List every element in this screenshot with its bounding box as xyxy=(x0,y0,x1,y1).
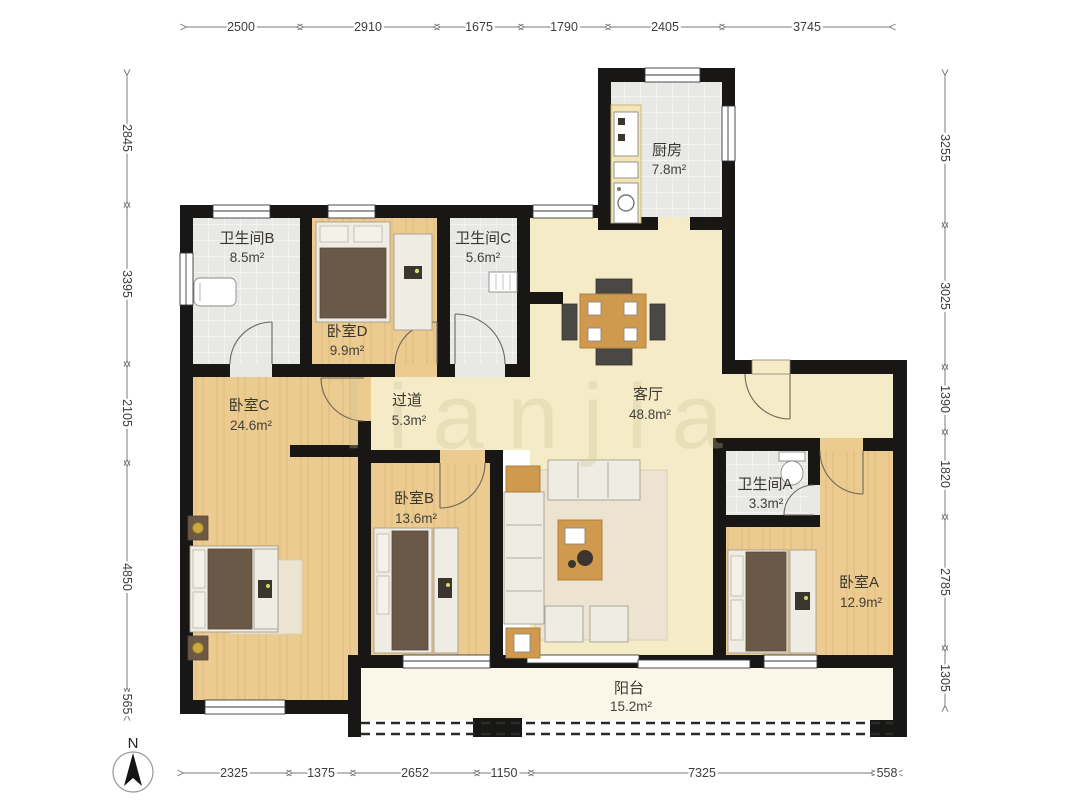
room-name-balcony: 阳台 xyxy=(614,680,644,697)
svg-text:1375: 1375 xyxy=(307,766,335,780)
svg-text:2105: 2105 xyxy=(120,399,134,427)
room-name-bedroom-c: 卧室C xyxy=(229,397,270,414)
svg-text:1150: 1150 xyxy=(491,766,518,780)
room-area-bathroom-c: 5.6m² xyxy=(466,250,501,265)
room-area-living-room: 48.8m² xyxy=(629,407,672,422)
sofa-group xyxy=(504,460,667,658)
room-area-kitchen: 7.8m² xyxy=(652,162,687,177)
svg-text:3255: 3255 xyxy=(938,134,952,162)
svg-text:1820: 1820 xyxy=(938,460,952,488)
room-name-bedroom-b: 卧室B xyxy=(394,490,434,507)
room-name-bedroom-a: 卧室A xyxy=(839,574,879,591)
window-bedroom-b xyxy=(403,655,490,668)
bed-bedroom-a xyxy=(728,550,816,653)
svg-text:3745: 3745 xyxy=(793,20,821,34)
window-kitchen-right xyxy=(722,106,735,161)
dim-top: 2500 2910 1675 1790 2405 3745 xyxy=(186,20,890,34)
svg-text:565: 565 xyxy=(120,694,134,715)
floor-kitchen-passage xyxy=(658,217,690,231)
svg-text:1790: 1790 xyxy=(550,20,578,34)
room-area-hallway: 5.3m² xyxy=(392,413,427,428)
kitchen-counter xyxy=(611,105,641,223)
floor-bedroom-c xyxy=(193,377,358,700)
window-bedroom-c xyxy=(205,700,285,714)
room-name-bathroom-b: 卫生间B xyxy=(219,230,274,247)
svg-text:2652: 2652 xyxy=(401,766,429,780)
bed-bedroom-d xyxy=(316,222,432,330)
svg-text:1390: 1390 xyxy=(938,385,952,413)
compass: N xyxy=(113,735,153,792)
svg-text:2500: 2500 xyxy=(227,20,255,34)
svg-text:7325: 7325 xyxy=(688,766,716,780)
room-name-bathroom-a: 卫生间A xyxy=(737,476,792,493)
room-area-bathroom-a: 3.3m² xyxy=(749,496,784,511)
compass-north-label: N xyxy=(128,735,139,752)
coffee-table xyxy=(558,520,602,580)
room-name-bedroom-d: 卧室D xyxy=(327,323,368,340)
svg-text:4850: 4850 xyxy=(120,563,134,591)
nightstand xyxy=(188,516,208,540)
svg-text:2325: 2325 xyxy=(220,766,248,780)
floor-plan: lianjia 卫生间B 8.5m² 卧室D 9.9m² 卫生间C 5.6m² … xyxy=(0,0,1080,810)
svg-text:3025: 3025 xyxy=(938,282,952,310)
window-bedroom-a xyxy=(764,655,817,668)
svg-text:2785: 2785 xyxy=(938,568,952,596)
window-bedroom-d xyxy=(328,205,375,218)
window-bathroom-b xyxy=(180,253,193,305)
room-name-kitchen: 厨房 xyxy=(652,142,682,159)
room-area-bathroom-b: 8.5m² xyxy=(230,250,265,265)
dim-left: 2845 3395 2105 4850 565 xyxy=(120,75,134,715)
dim-bottom: 2325 1375 2652 1150 7325 558 xyxy=(183,766,897,780)
room-area-balcony: 15.2m² xyxy=(610,699,653,714)
balcony-railing xyxy=(361,723,893,734)
room-name-living-room: 客厅 xyxy=(633,386,663,403)
room-area-bedroom-a: 12.9m² xyxy=(840,595,883,610)
svg-text:1305: 1305 xyxy=(938,664,952,692)
room-name-bathroom-c: 卫生间C xyxy=(455,230,511,247)
dim-right: 3255 3025 1390 1820 2785 1305 xyxy=(938,75,952,706)
svg-text:2845: 2845 xyxy=(120,124,134,152)
room-area-bedroom-d: 9.9m² xyxy=(330,343,365,358)
washing-machine-icon xyxy=(614,183,638,223)
svg-text:1675: 1675 xyxy=(465,20,493,34)
room-area-bedroom-c: 24.6m² xyxy=(230,418,273,433)
room-name-hallway: 过道 xyxy=(392,392,422,409)
nightstand xyxy=(188,636,208,660)
svg-text:2910: 2910 xyxy=(354,20,382,34)
window-top-1 xyxy=(213,205,270,218)
svg-text:558: 558 xyxy=(877,766,898,780)
svg-text:3395: 3395 xyxy=(120,270,134,298)
bed-bedroom-b xyxy=(374,528,458,653)
svg-text:2405: 2405 xyxy=(651,20,679,34)
room-area-bedroom-b: 13.6m² xyxy=(395,511,438,526)
window-living xyxy=(533,205,593,218)
window-kitchen-top xyxy=(645,68,700,82)
